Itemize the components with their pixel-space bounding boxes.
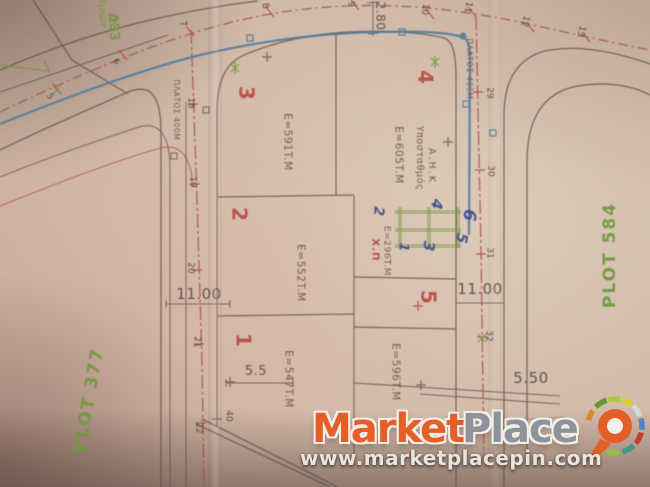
area-label-plot4: E=605T.M: [392, 126, 403, 184]
parcel-and-road-lines: [0, 0, 650, 487]
plan-drawing: [0, 0, 650, 487]
station-number: 21: [191, 336, 200, 347]
station-number: 9: [345, 1, 355, 7]
substation-label-line2: Α.Η.Κ: [426, 148, 436, 184]
station-number: 20: [185, 262, 194, 273]
area-label-plot1: E=547T.M: [282, 350, 293, 408]
plot-584-label: PLOT 584: [602, 202, 620, 308]
dimension-half-right: 5.50: [513, 371, 548, 387]
station-number: 40: [223, 410, 232, 421]
station-number: 8: [259, 2, 269, 9]
area-label-plot5: E=596T.M: [389, 343, 400, 401]
station-number: 10: [419, 3, 430, 16]
small-parcel-label: Χ.Π: [369, 239, 380, 262]
station-number: 31: [484, 247, 493, 258]
station-number: 12: [518, 14, 530, 27]
plot-number-3: 3: [236, 86, 257, 100]
dimension-road-left: 11.00: [176, 287, 221, 303]
plot-number-1: 1: [233, 333, 254, 347]
road-width-label-left: ΠΛΑΤΟΣ 400Μ: [172, 80, 180, 141]
handwritten-number-6: 6: [459, 208, 478, 221]
dimension-half-left: 5.5: [245, 365, 267, 379]
section-label: Τμημα: [95, 0, 107, 28]
station-number: 29: [484, 87, 493, 98]
plot-number-5: 5: [418, 290, 439, 304]
substation-label-line1: Υποσταθμός: [414, 126, 424, 191]
station-number: 32: [483, 330, 492, 341]
area-label-plot3: E=591T.M: [281, 113, 292, 171]
station-number: 11: [461, 1, 472, 14]
station-number: 18: [185, 97, 194, 108]
cadastral-plan-photo: 5 6 7 8 9 10 11 12 13 18 19 20 21 22 40 …: [0, 0, 650, 487]
dimension-offset-top: 2.80: [374, 2, 387, 31]
station-number: 22: [193, 422, 202, 433]
handwritten-number-2: 2: [370, 206, 385, 217]
area-label-small-parcel: E=296T.M: [381, 226, 390, 276]
dimension-road-right: 11.00: [457, 282, 502, 298]
station-number: 19: [187, 176, 196, 187]
road-centerlines: [0, 0, 650, 487]
area-label-plot2: E=552T.M: [294, 244, 305, 302]
road-width-label-right: ΠΛΑΤΟΣ 400Μ: [465, 39, 473, 100]
survey-plan-layer: 5 6 7 8 9 10 11 12 13 18 19 20 21 22 40 …: [0, 0, 650, 487]
handwritten-number-1: 1: [396, 242, 410, 252]
station-number: 30: [485, 165, 494, 176]
station-number: 13: [574, 24, 586, 37]
handwritten-number-3: 3: [420, 240, 437, 252]
plot-number-2: 2: [229, 207, 250, 221]
plot-number-4: 4: [415, 70, 436, 84]
